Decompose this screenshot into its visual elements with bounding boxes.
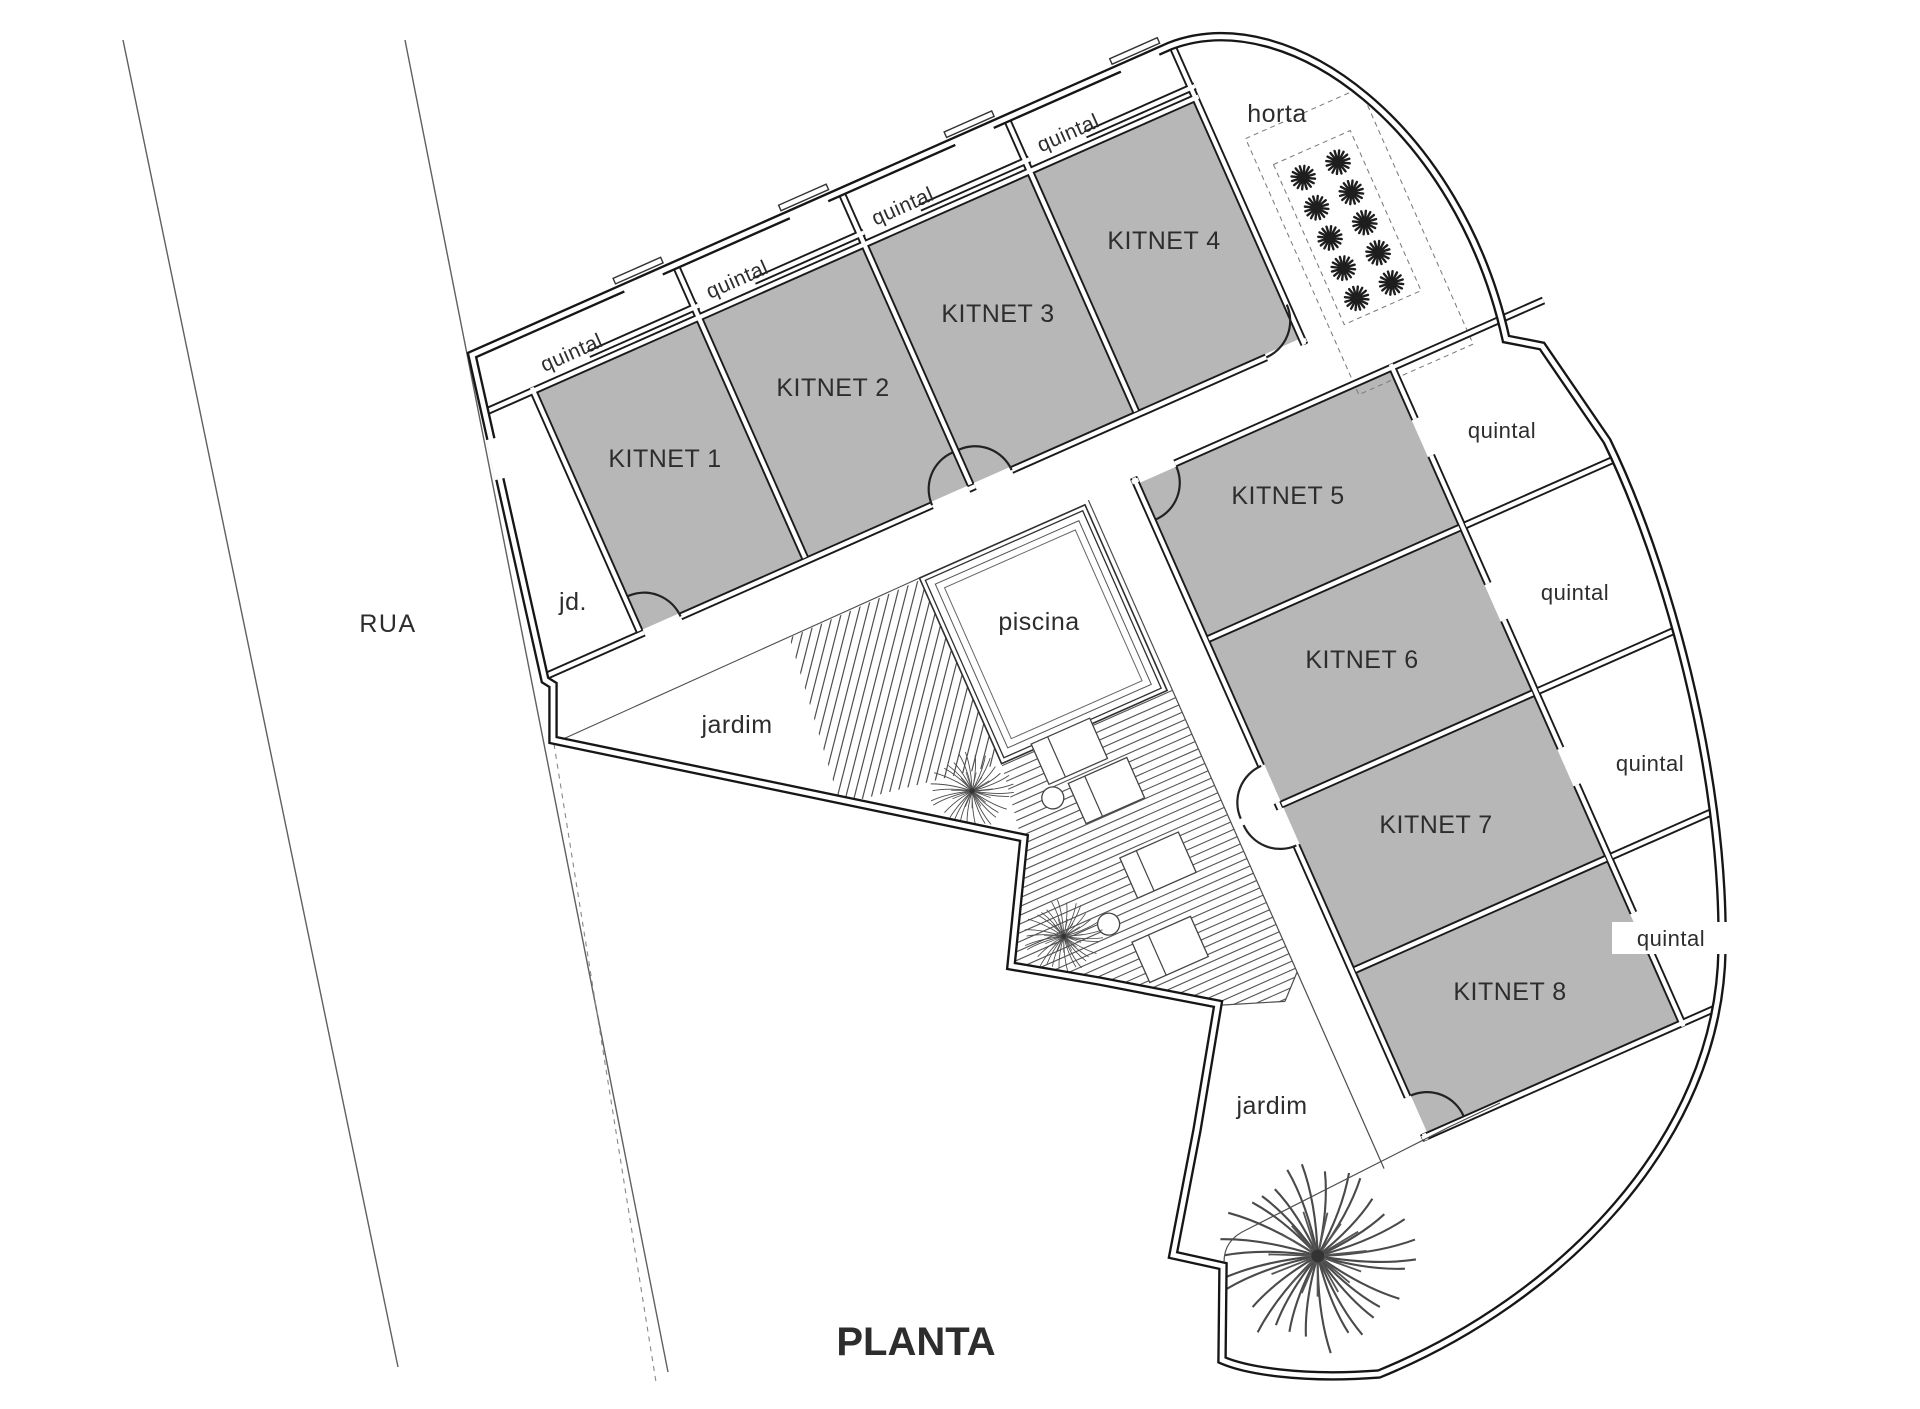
svg-text:quintal: quintal	[1468, 418, 1536, 443]
svg-text:jardim: jardim	[1235, 1092, 1307, 1120]
svg-text:quintal: quintal	[1541, 580, 1609, 605]
svg-text:KITNET 7: KITNET 7	[1379, 811, 1492, 839]
svg-text:KITNET 1: KITNET 1	[608, 445, 721, 473]
svg-text:KITNET 6: KITNET 6	[1305, 646, 1418, 674]
svg-text:piscina: piscina	[998, 608, 1079, 636]
svg-text:horta: horta	[1247, 100, 1306, 128]
svg-text:jardim: jardim	[700, 711, 772, 739]
svg-text:quintal: quintal	[1637, 926, 1705, 951]
svg-text:KITNET 3: KITNET 3	[941, 300, 1054, 328]
svg-text:PLANTA: PLANTA	[836, 1320, 995, 1364]
svg-text:KITNET 8: KITNET 8	[1453, 978, 1566, 1006]
svg-text:KITNET 2: KITNET 2	[776, 374, 889, 402]
svg-text:jd.: jd.	[558, 588, 587, 616]
svg-text:RUA: RUA	[359, 610, 416, 638]
svg-text:quintal: quintal	[1616, 751, 1684, 776]
svg-text:KITNET 5: KITNET 5	[1231, 482, 1344, 510]
svg-text:KITNET 4: KITNET 4	[1107, 227, 1220, 255]
